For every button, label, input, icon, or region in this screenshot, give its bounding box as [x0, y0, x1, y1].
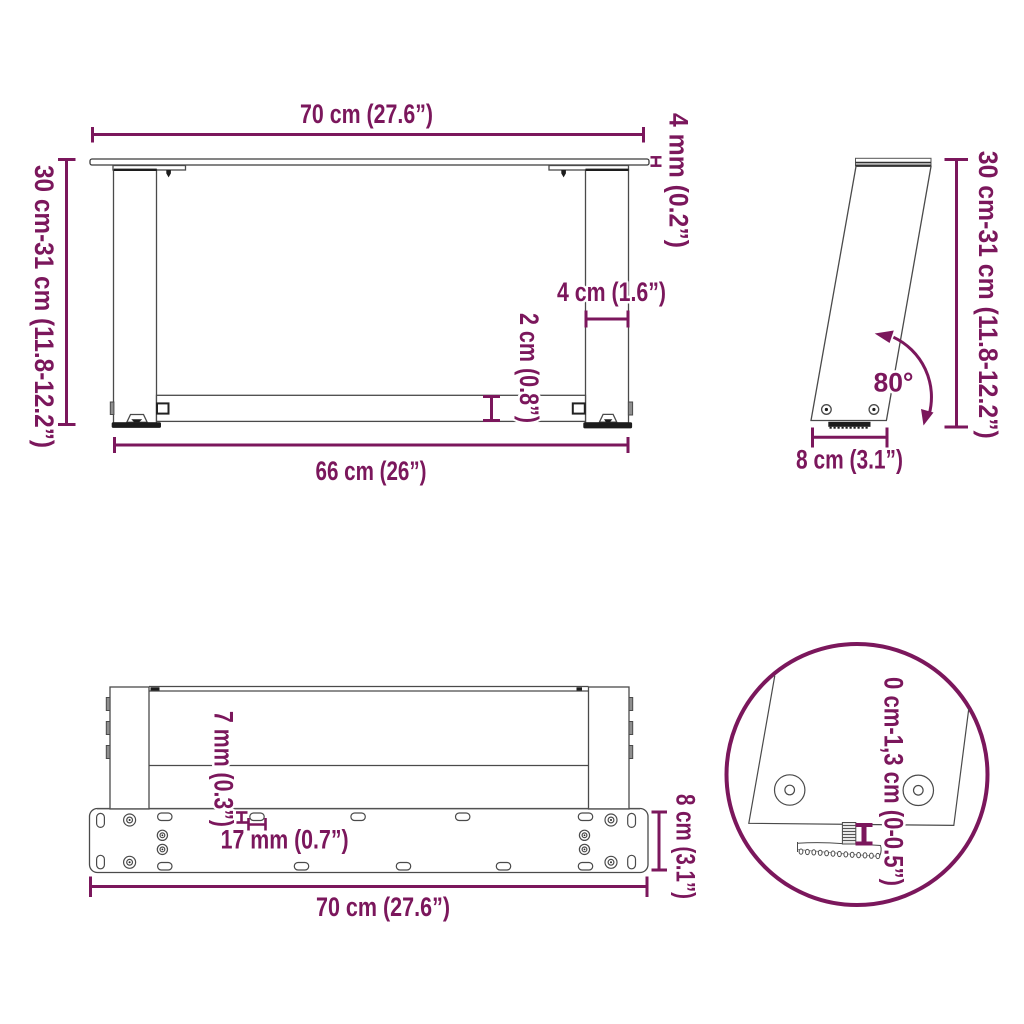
svg-text:70 cm (27.6”): 70 cm (27.6”)	[300, 99, 433, 129]
svg-text:4 mm (0.2”): 4 mm (0.2”)	[664, 113, 694, 248]
svg-text:66 cm (26”): 66 cm (26”)	[316, 456, 427, 486]
svg-text:80°: 80°	[873, 368, 913, 398]
svg-text:8 cm (3.1”): 8 cm (3.1”)	[671, 794, 701, 899]
svg-text:70 cm (27.6”): 70 cm (27.6”)	[316, 892, 450, 922]
svg-text:30 cm-31 cm (11.8-12.2”): 30 cm-31 cm (11.8-12.2”)	[29, 165, 59, 448]
svg-text:4 cm (1.6”): 4 cm (1.6”)	[557, 277, 666, 307]
svg-text:2 cm (0.8”): 2 cm (0.8”)	[514, 313, 544, 423]
svg-text:30 cm-31 cm (11.8-12.2”): 30 cm-31 cm (11.8-12.2”)	[973, 151, 1003, 439]
svg-text:7 mm (0.3”): 7 mm (0.3”)	[209, 711, 239, 827]
svg-text:8 cm (3.1”): 8 cm (3.1”)	[796, 445, 903, 475]
svg-text:17 mm (0.7”): 17 mm (0.7”)	[221, 825, 349, 855]
svg-text:0 cm-1,3 cm (0-0.5”): 0 cm-1,3 cm (0-0.5”)	[879, 677, 909, 886]
